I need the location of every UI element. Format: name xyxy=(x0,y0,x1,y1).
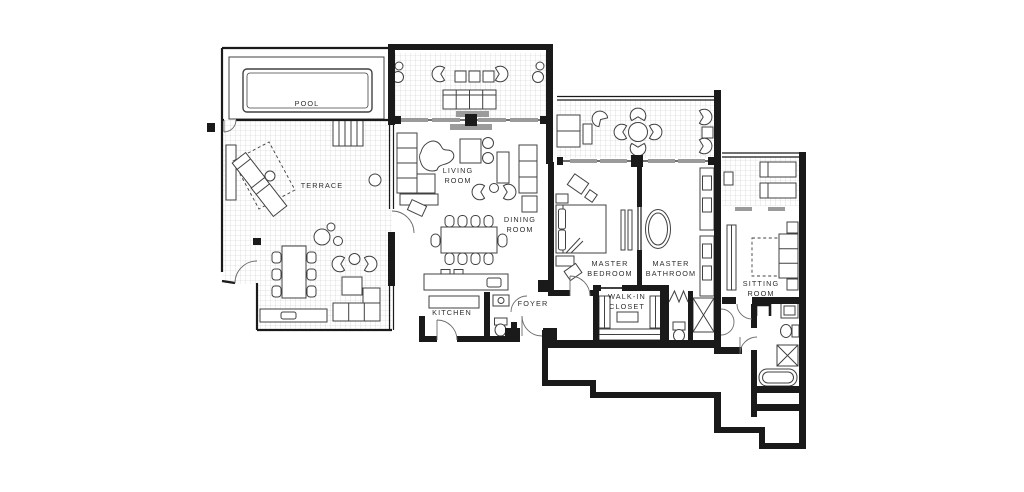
bifold-door xyxy=(669,291,688,302)
side-table xyxy=(369,174,381,186)
armchair-ottoman xyxy=(567,174,597,202)
side-table xyxy=(497,152,509,183)
walk-in-closet-label-2: CLOSET xyxy=(609,302,645,311)
foyer-label: FOYER xyxy=(518,299,549,308)
pouf xyxy=(483,138,494,149)
media-cabinet xyxy=(519,145,537,212)
dining-set xyxy=(431,216,507,265)
living-room-label-2: ROOM xyxy=(444,176,471,185)
planter xyxy=(226,145,236,200)
side-table xyxy=(265,171,275,181)
vanity xyxy=(700,168,714,296)
coffee-table xyxy=(460,139,481,163)
pool-label: POOL xyxy=(295,99,320,108)
powder-sink xyxy=(493,295,509,306)
ottoman xyxy=(455,71,466,82)
kitchen-label: KITCHEN xyxy=(432,308,472,317)
dining-room-label-1: DINING xyxy=(504,215,536,224)
master-bathroom-label-2: BATHROOM xyxy=(646,269,696,278)
kitchen-island xyxy=(429,296,479,308)
pouf xyxy=(483,153,494,164)
pool-deck xyxy=(229,57,384,119)
closet-island xyxy=(617,312,638,322)
pivot-door xyxy=(465,114,477,126)
room-divider xyxy=(628,210,632,250)
walk-in-closet-label-1: WALK-IN xyxy=(608,292,646,301)
master-toilet xyxy=(673,322,685,342)
kitchen-sink xyxy=(487,278,501,287)
bath2-toilet xyxy=(781,325,800,338)
master-shower xyxy=(693,298,714,332)
ottoman xyxy=(483,71,494,82)
bath2-shower xyxy=(777,345,798,366)
outdoor-dining-set xyxy=(272,246,316,298)
living-room-label-1: LIVING xyxy=(443,166,474,175)
master-bed xyxy=(556,205,606,253)
dining-table xyxy=(441,227,497,253)
master-bathroom-label-1: MASTER xyxy=(652,259,689,268)
nightstand xyxy=(556,194,568,203)
balcony-daybed xyxy=(557,115,580,147)
bathtub xyxy=(646,210,671,249)
floor-plan-page: POOL TERRACE LIVING ROOM DINING ROOM KIT… xyxy=(0,0,1024,492)
floor-plan: POOL TERRACE LIVING ROOM DINING ROOM KIT… xyxy=(0,0,1024,492)
column xyxy=(253,238,261,245)
dining-room-label-2: ROOM xyxy=(506,225,533,234)
tea-chairs xyxy=(472,184,516,200)
terrace-bench xyxy=(260,309,327,322)
dressing-console xyxy=(756,305,770,316)
master-bedroom-label-1: MASTER xyxy=(591,259,628,268)
column xyxy=(207,123,215,132)
master-bedroom-label-2: BEDROOM xyxy=(587,269,632,278)
bench xyxy=(556,256,574,266)
terrace-label: TERRACE xyxy=(301,181,344,190)
sitting-room-label-1: SITTING xyxy=(743,279,779,288)
pool-steps xyxy=(333,119,363,146)
second-bathroom-fixtures xyxy=(756,303,799,386)
sitting-sofa xyxy=(779,222,798,290)
pivot-door xyxy=(631,155,643,167)
bath2-tub xyxy=(759,369,797,386)
room-divider xyxy=(621,210,625,250)
sitting-room-label-2: ROOM xyxy=(747,289,774,298)
ottoman xyxy=(469,71,480,82)
rollaway-bed-outline xyxy=(752,238,779,276)
